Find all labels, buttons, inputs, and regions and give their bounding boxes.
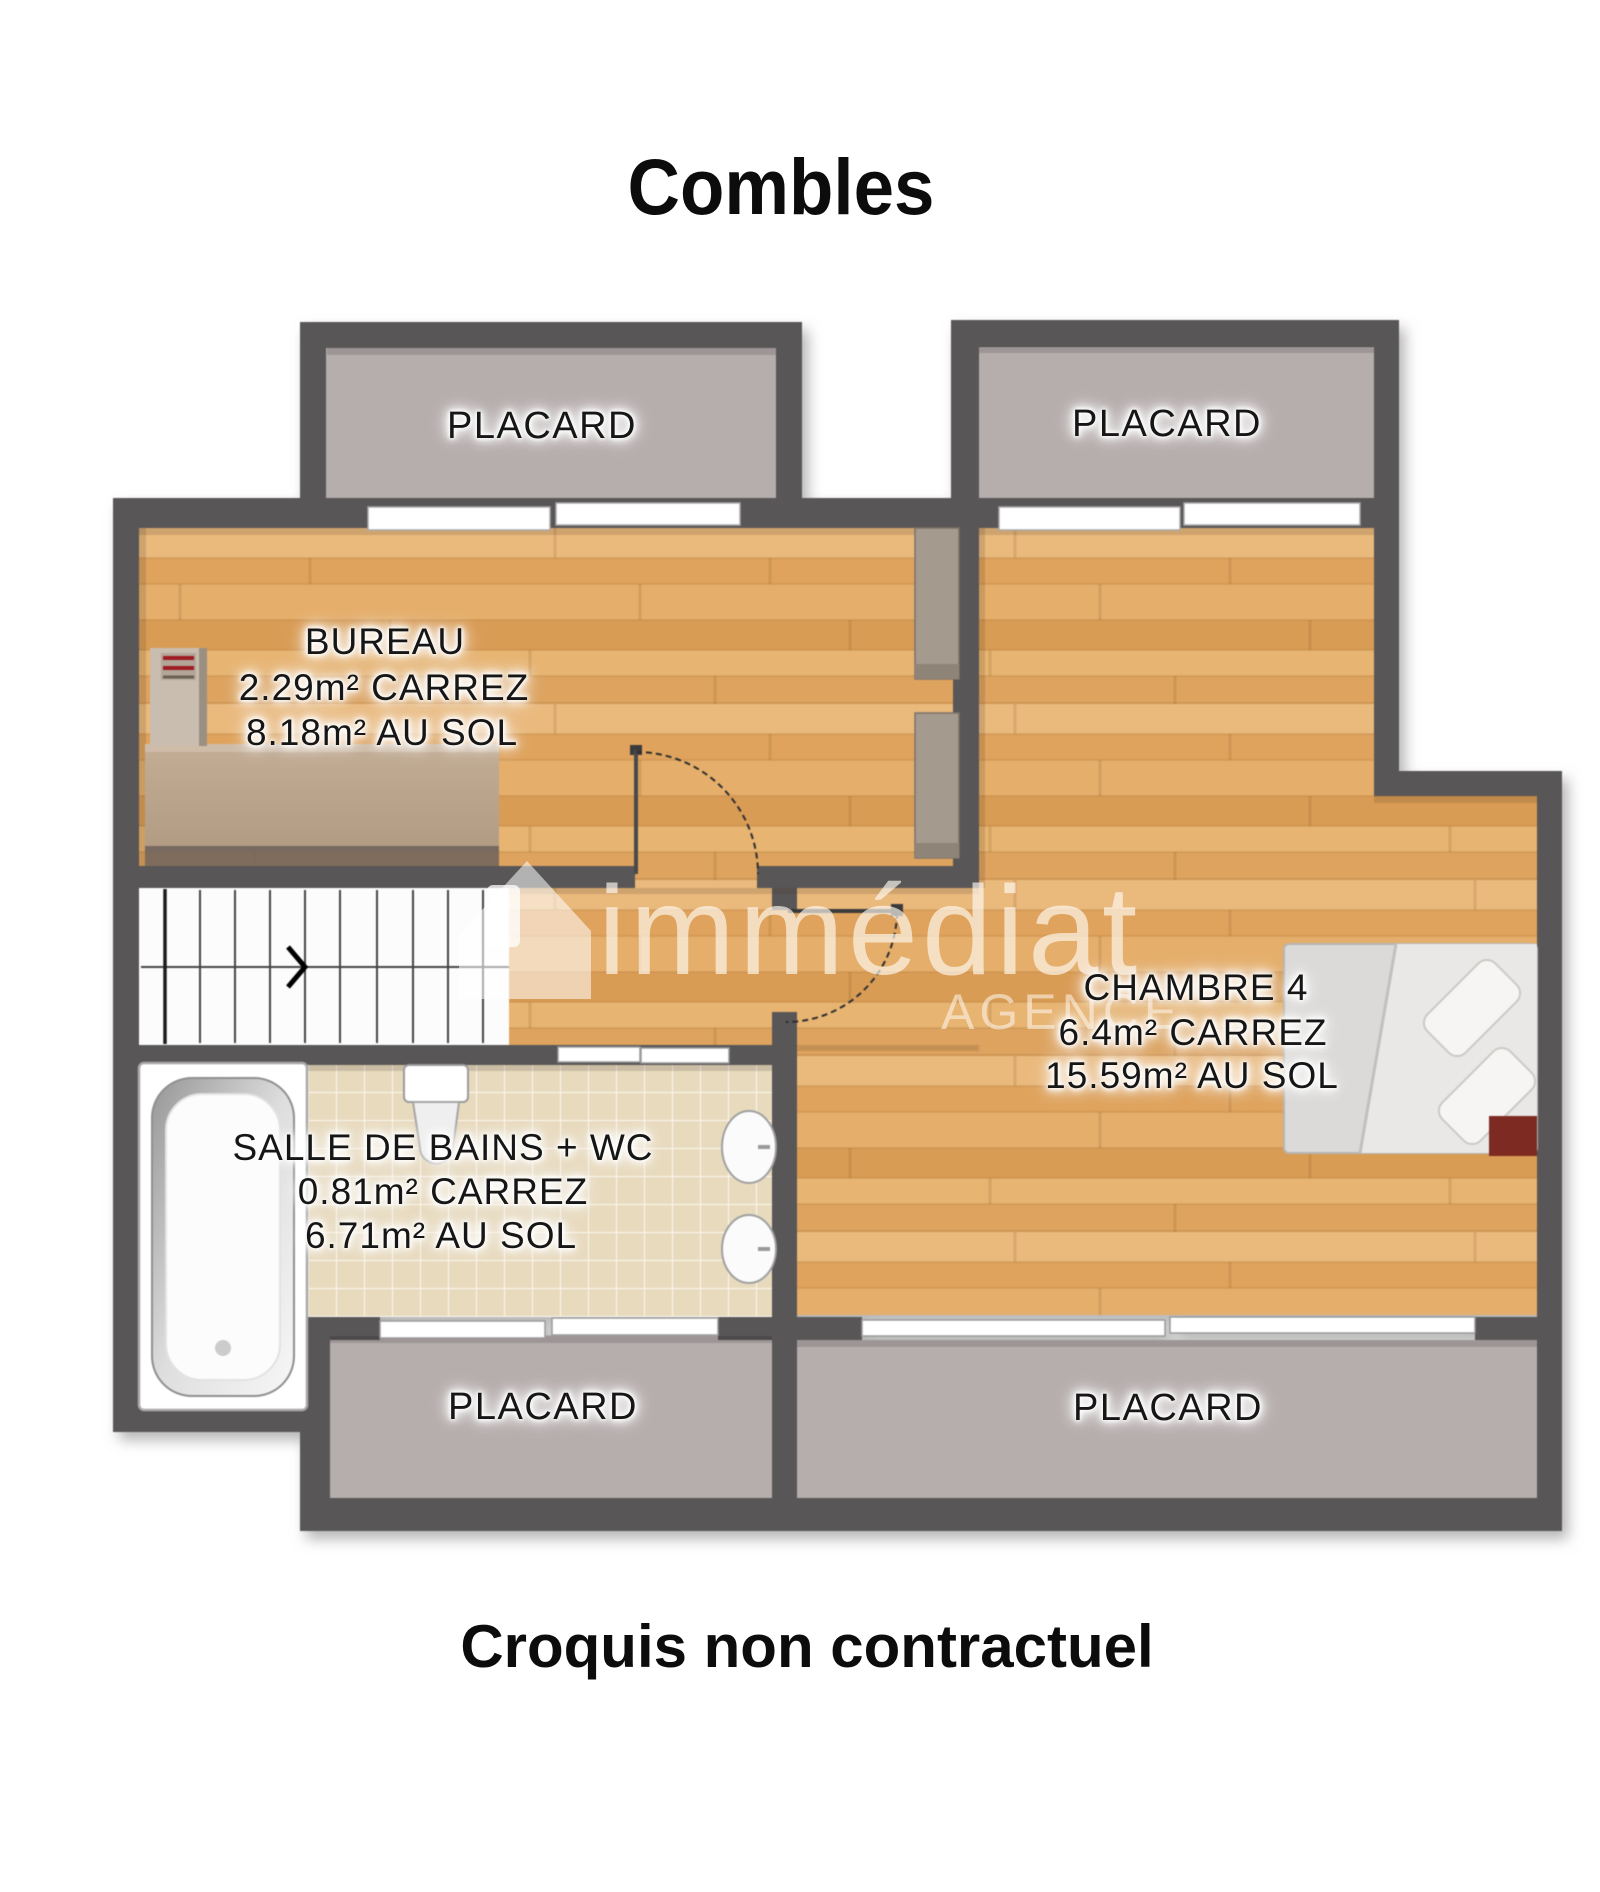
svg-text:immédiat: immédiat (598, 860, 1141, 1001)
